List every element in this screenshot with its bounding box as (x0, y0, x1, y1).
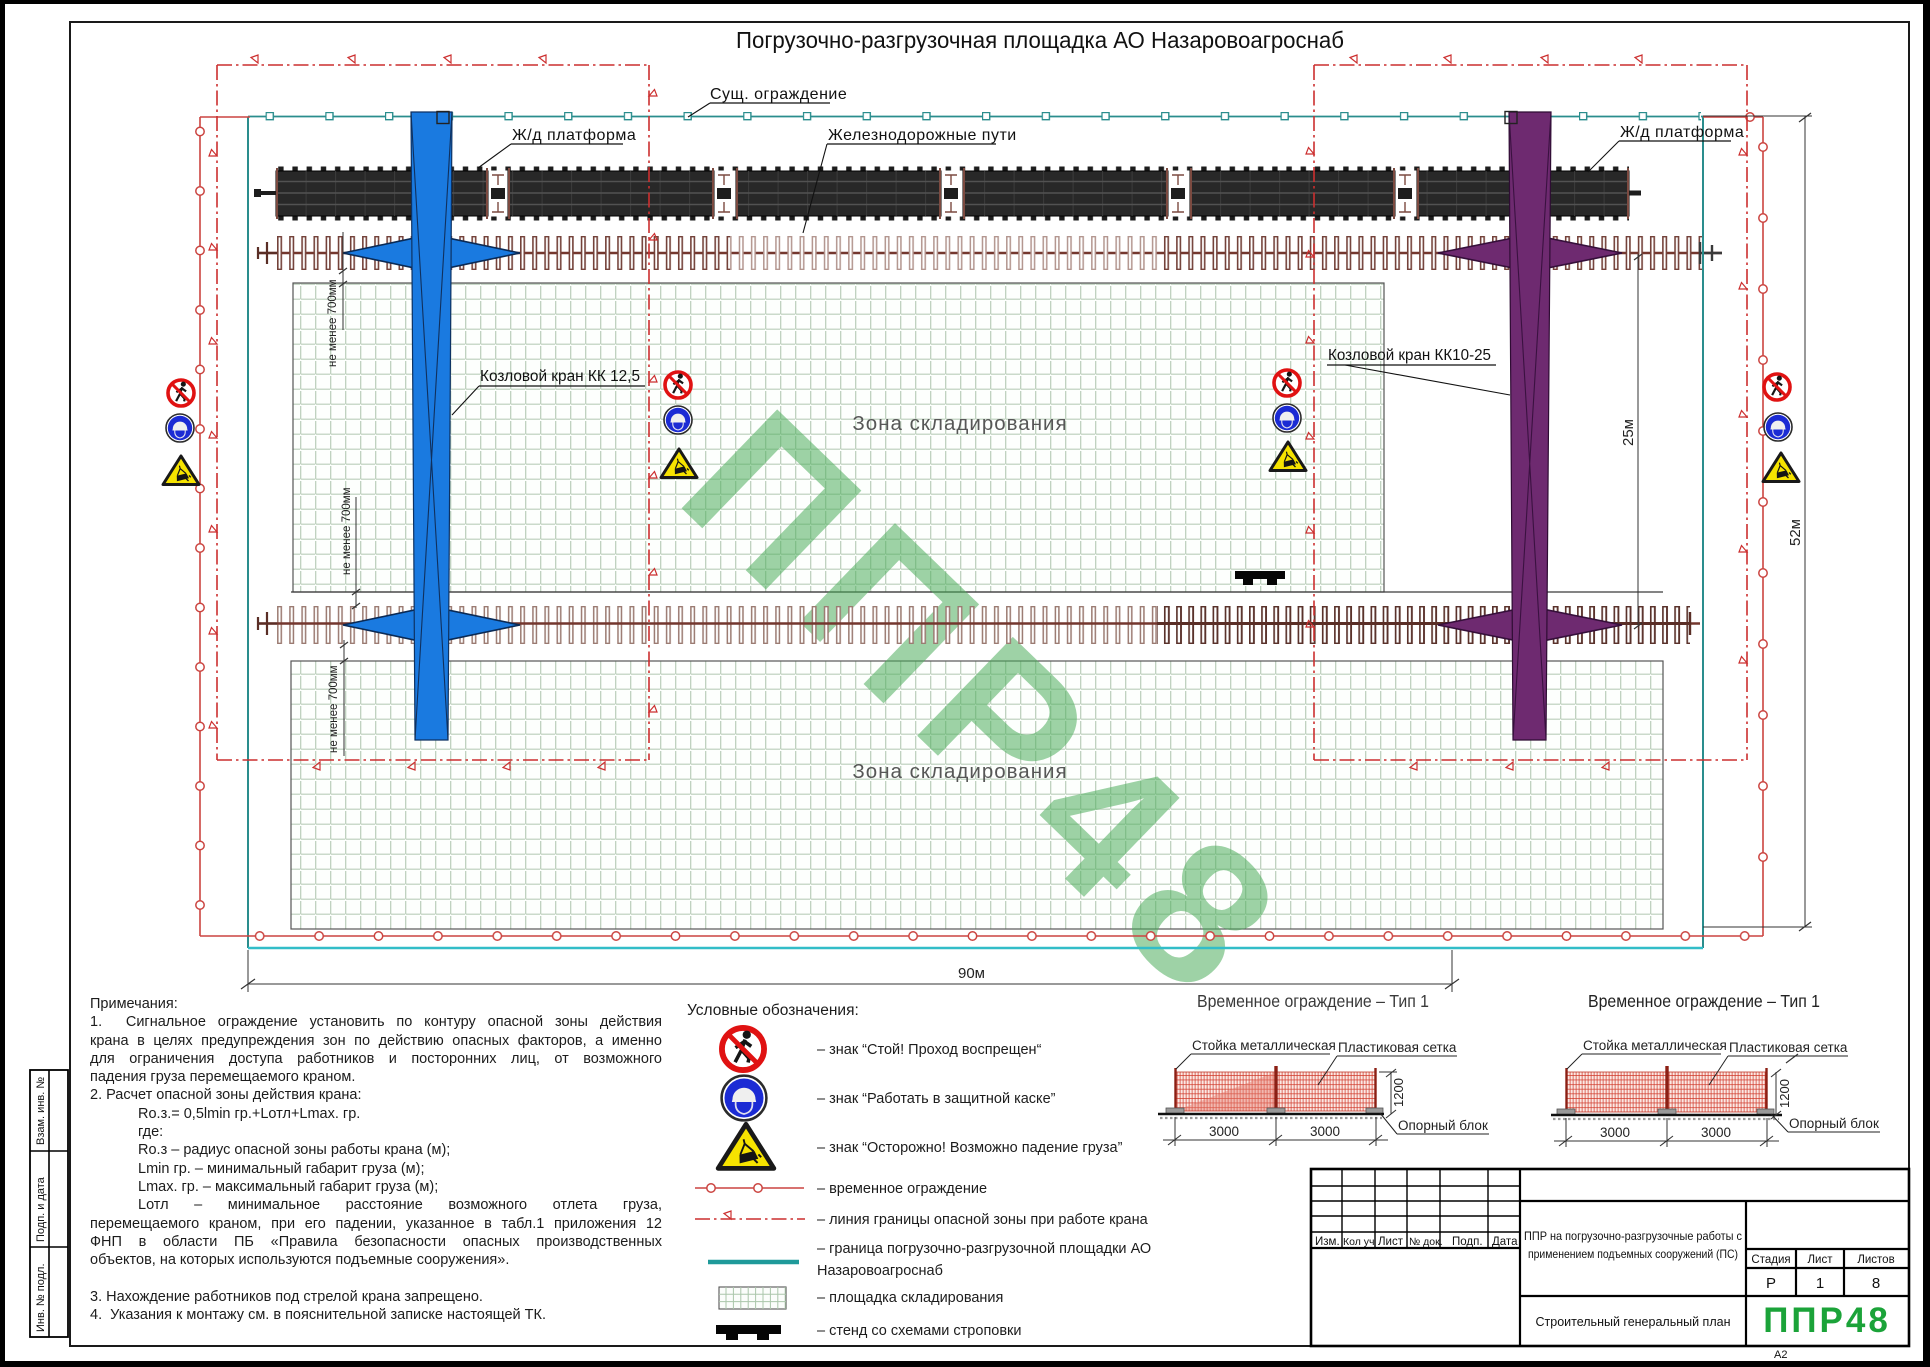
svg-text:Пластиковая сетка: Пластиковая сетка (1729, 1040, 1848, 1055)
svg-text:Ж/д платформа: Ж/д платформа (1620, 124, 1744, 141)
svg-text:– линия границы опасной зоны п: – линия границы опасной зоны при работе … (817, 1212, 1149, 1228)
svg-text:А2: А2 (1774, 1349, 1787, 1361)
svg-text:ППР на погрузочно-разгрузочные: ППР на погрузочно-разгрузочные работы с (1524, 1229, 1742, 1243)
svg-text:– знак “Осторожно! Возможно па: – знак “Осторожно! Возможно падение груз… (817, 1140, 1123, 1156)
svg-text:Козловой кран КК 12,5: Козловой кран КК 12,5 (480, 368, 640, 385)
svg-text:Р: Р (1766, 1275, 1776, 1292)
svg-text:Временное ограждение – Тип 1: Временное ограждение – Тип 1 (1588, 991, 1820, 1011)
svg-text:1200: 1200 (1391, 1078, 1406, 1107)
svg-text:Временное ограждение – Тип 1: Временное ограждение – Тип 1 (1197, 991, 1429, 1011)
svg-text:не менее 700мм: не менее 700мм (328, 665, 340, 753)
svg-text:Стойка металлическая: Стойка металлическая (1583, 1038, 1727, 1053)
svg-text:Железнодорожные пути: Железнодорожные пути (828, 127, 1017, 144)
svg-text:Строительный генеральный план: Строительный генеральный план (1536, 1315, 1731, 1329)
svg-text:Козловой кран КК10-25: Козловой кран КК10-25 (1328, 347, 1491, 364)
svg-text:Зона складирования: Зона складирования (852, 412, 1067, 435)
svg-text:90м: 90м (958, 965, 985, 982)
svg-text:Изм.: Изм. (1315, 1236, 1340, 1248)
svg-text:Ж/д платформа: Ж/д платформа (512, 127, 636, 144)
svg-text:Погрузочно-разгрузочная площад: Погрузочно-разгрузочная площадка АО Наза… (736, 27, 1344, 53)
svg-text:1200: 1200 (1777, 1079, 1792, 1108)
svg-text:8: 8 (1872, 1275, 1880, 1292)
svg-text:применением подъемных сооружен: применением подъемных сооружений (ПС) (1528, 1247, 1738, 1261)
svg-text:не менее 700мм: не менее 700мм (341, 487, 353, 575)
svg-text:Подп. и дата: Подп. и дата (35, 1176, 47, 1242)
svg-text:Стадия: Стадия (1751, 1254, 1790, 1266)
svg-text:Опорный блок: Опорный блок (1398, 1118, 1488, 1133)
svg-text:Инв. № подл.: Инв. № подл. (35, 1263, 47, 1332)
svg-text:– граница погрузочно-разгрузоч: – граница погрузочно-разгрузочной площад… (817, 1241, 1151, 1257)
svg-text:Лист: Лист (1808, 1254, 1834, 1266)
svg-text:Назаровоагроснаб: Назаровоагроснаб (817, 1263, 943, 1279)
svg-text:Сущ. ограждение: Сущ. ограждение (710, 86, 847, 103)
svg-text:52м: 52м (1787, 519, 1804, 546)
svg-text:– стенд со схемами строповки: – стенд со схемами строповки (817, 1323, 1022, 1339)
svg-text:Зона складирования: Зона складирования (852, 760, 1067, 783)
svg-text:– площадка складирования: – площадка складирования (817, 1290, 1003, 1306)
svg-text:не менее 700мм: не менее 700мм (327, 279, 339, 367)
svg-text:– знак “Работать в защитной ка: – знак “Работать в защитной каске” (817, 1091, 1056, 1107)
svg-text:Пластиковая сетка: Пластиковая сетка (1338, 1040, 1457, 1055)
svg-text:Стойка металлическая: Стойка металлическая (1192, 1038, 1336, 1053)
svg-text:ППР48: ППР48 (1763, 1301, 1891, 1340)
svg-text:Лист: Лист (1378, 1236, 1404, 1248)
svg-text:Взам. инв. №: Взам. инв. № (35, 1077, 47, 1145)
svg-text:1: 1 (1816, 1275, 1824, 1292)
svg-text:Условные обозначения:: Условные обозначения: (687, 1002, 859, 1019)
svg-text:– временное ограждение: – временное ограждение (817, 1181, 987, 1197)
svg-text:Листов: Листов (1857, 1254, 1894, 1266)
svg-text:Дата: Дата (1492, 1236, 1518, 1248)
svg-text:3000: 3000 (1209, 1124, 1239, 1139)
svg-text:3000: 3000 (1310, 1124, 1340, 1139)
svg-text:– знак “Стой! Проход воспрещен: – знак “Стой! Проход воспрещен“ (817, 1042, 1042, 1058)
svg-text:3000: 3000 (1600, 1125, 1630, 1140)
svg-text:3000: 3000 (1701, 1125, 1731, 1140)
svg-text:Подп.: Подп. (1452, 1236, 1483, 1248)
svg-text:№ док.: № док. (1409, 1236, 1443, 1248)
svg-text:Кол уч: Кол уч (1343, 1236, 1375, 1248)
svg-text:25м: 25м (1620, 419, 1637, 446)
svg-text:Опорный блок: Опорный блок (1789, 1116, 1879, 1131)
